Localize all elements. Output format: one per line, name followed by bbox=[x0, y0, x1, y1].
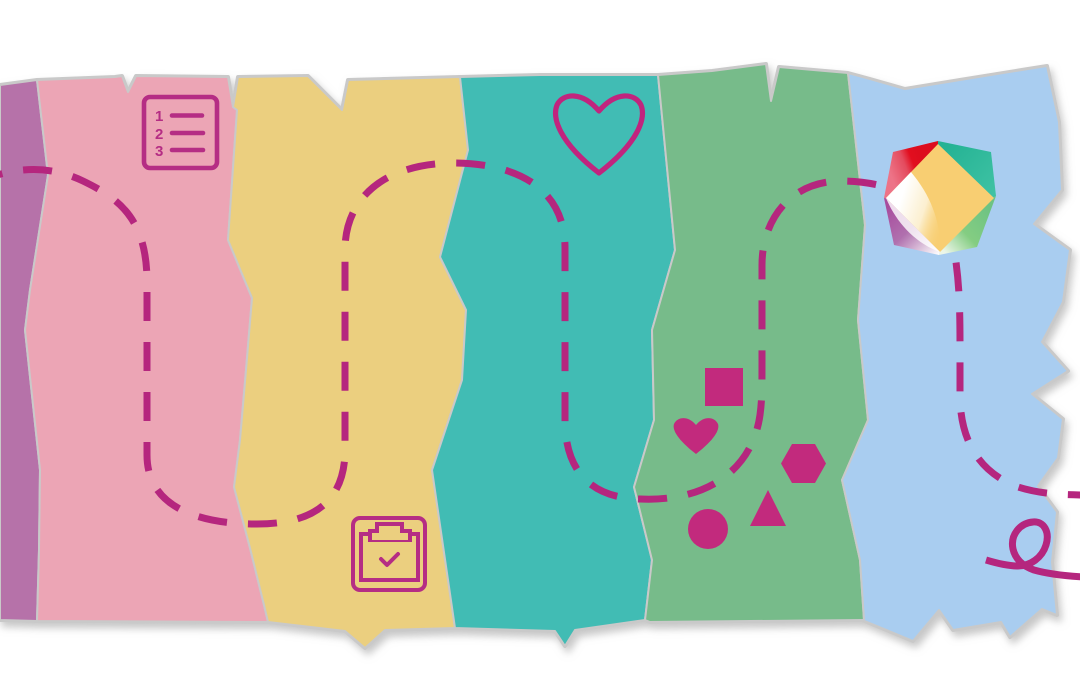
svg-text:1: 1 bbox=[155, 108, 163, 125]
svg-text:2: 2 bbox=[155, 126, 163, 143]
svg-text:3: 3 bbox=[155, 143, 163, 160]
